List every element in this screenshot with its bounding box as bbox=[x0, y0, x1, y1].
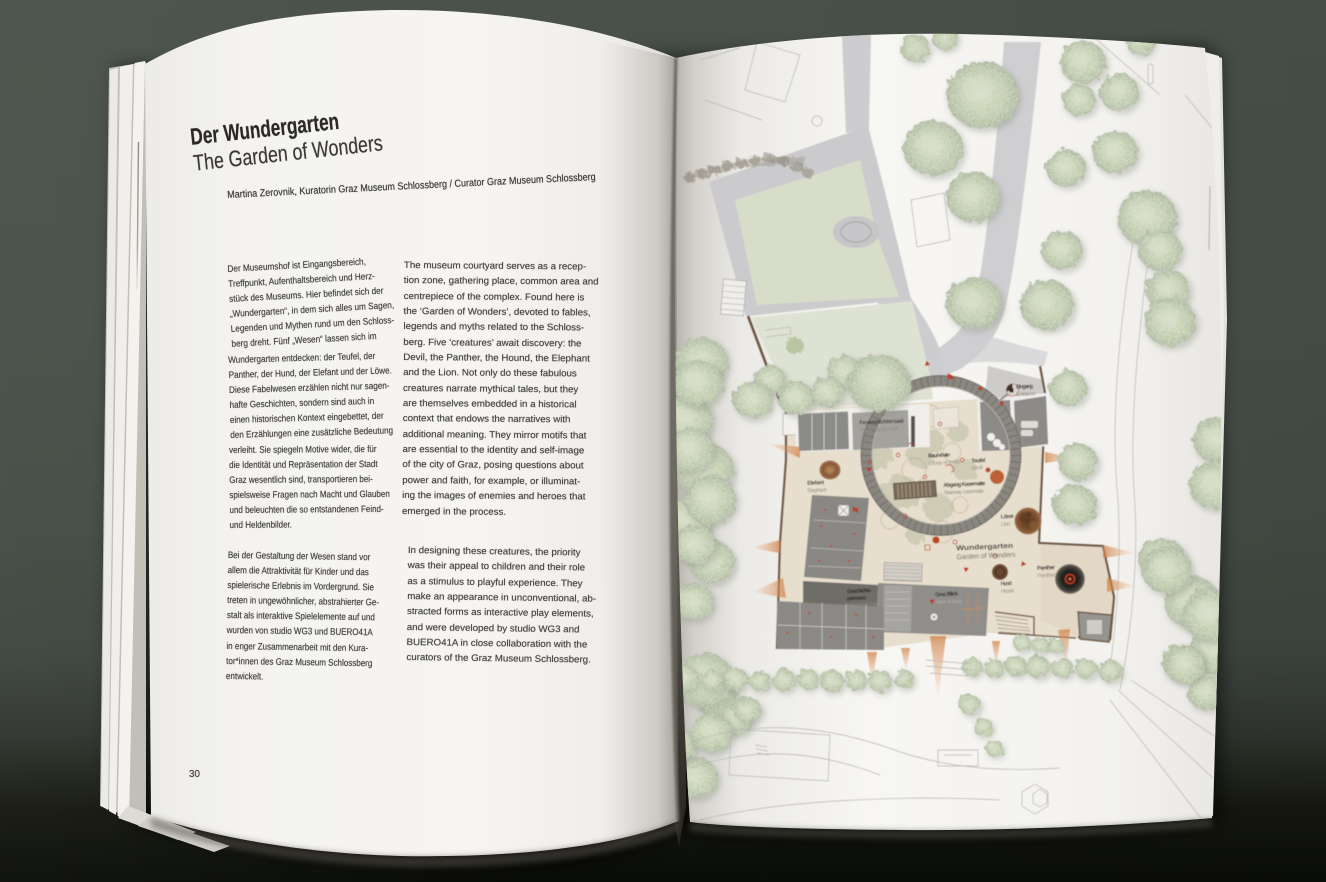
svg-text:parcours: parcours bbox=[847, 595, 866, 602]
svg-text:Elephant: Elephant bbox=[807, 487, 827, 494]
svg-text:Hund: Hund bbox=[1001, 581, 1013, 587]
svg-text:Panther: Panther bbox=[1037, 565, 1056, 572]
svg-text:Devil: Devil bbox=[972, 465, 983, 471]
svg-text:View of Graz: View of Graz bbox=[935, 599, 963, 606]
svg-text:Teufel: Teufel bbox=[971, 458, 986, 465]
svg-text:Baumhain: Baumhain bbox=[928, 452, 951, 459]
svg-text:Panther: Panther bbox=[1037, 573, 1055, 580]
svg-text:Graz Blick: Graz Blick bbox=[935, 591, 959, 598]
svg-text:Hound: Hound bbox=[1001, 588, 1014, 595]
svg-text:Lion: Lion bbox=[1001, 521, 1010, 527]
svg-text:Löwe: Löwe bbox=[1001, 514, 1014, 521]
svg-text:Geschichts-: Geschichts- bbox=[847, 588, 872, 595]
svg-text:Elefant: Elefant bbox=[807, 480, 824, 487]
svg-text:Eingang: Eingang bbox=[1016, 384, 1034, 391]
svg-text:Entrance: Entrance bbox=[1016, 391, 1035, 398]
